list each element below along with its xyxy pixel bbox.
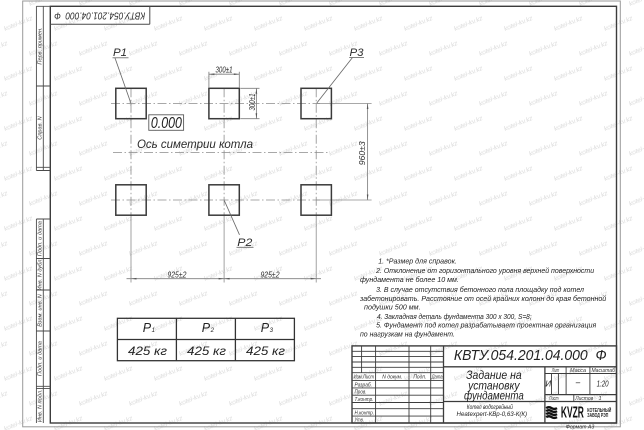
svg-text:И: И bbox=[545, 380, 551, 389]
svg-text:фундамента не более 10 мм.: фундамента не более 10 мм. bbox=[360, 275, 459, 284]
svg-text:300±1: 300±1 bbox=[248, 94, 257, 111]
svg-text:Изм.Лист: Изм.Лист bbox=[354, 375, 375, 381]
svg-text:Листов: Листов bbox=[574, 396, 593, 402]
svg-text:Масштаб: Масштаб bbox=[591, 368, 615, 374]
svg-text:Р: Р bbox=[143, 321, 152, 335]
svg-text:–: – bbox=[575, 378, 581, 387]
svg-text:3. В случае отсутствия бетонно: 3. В случае отсутствия бетонного пола пл… bbox=[376, 285, 585, 294]
svg-text:960±3: 960±3 bbox=[358, 141, 367, 166]
svg-text:Ось симетрии котла: Ось симетрии котла bbox=[137, 139, 253, 151]
svg-text:Т.контр.: Т.контр. bbox=[355, 397, 374, 403]
svg-text:1:20: 1:20 bbox=[597, 380, 609, 389]
svg-text:Утв.: Утв. bbox=[354, 418, 364, 424]
svg-text:Heatexpert-КВр-0,63-К(К): Heatexpert-КВр-0,63-К(К) bbox=[457, 411, 528, 418]
svg-text:Р1: Р1 bbox=[113, 47, 127, 59]
svg-text:Р: Р bbox=[261, 321, 270, 335]
svg-text:Перв. примен.: Перв. примен. bbox=[38, 27, 44, 64]
svg-text:подушки 500 мм.: подушки 500 мм. bbox=[364, 303, 421, 312]
svg-text:ЗАВОД РЭП: ЗАВОД РЭП bbox=[587, 413, 608, 419]
svg-text:Пров.: Пров. bbox=[355, 390, 367, 396]
svg-text:2. Отклонение от горизонтально: 2. Отклонение от горизонтального уровня … bbox=[375, 266, 595, 275]
svg-text:4. Закладная деталь фундамента: 4. Закладная деталь фундамента 300 х 300… bbox=[377, 312, 532, 321]
svg-text:Подп. и дата: Подп. и дата bbox=[38, 341, 44, 376]
svg-text:Р: Р bbox=[202, 321, 211, 335]
svg-text:фундамента: фундамента bbox=[464, 389, 524, 403]
svg-text:Справ. N: Справ. N bbox=[38, 115, 44, 139]
svg-text:Инв. N подл.: Инв. N подл. bbox=[38, 389, 44, 422]
svg-text:КВТУ.054.201.04.000 Ф: КВТУ.054.201.04.000 Ф bbox=[454, 347, 607, 364]
svg-text:Инв. N дубл.: Инв. N дубл. bbox=[38, 258, 44, 290]
svg-text:300±1: 300±1 bbox=[216, 65, 233, 74]
svg-text:забетонировать. Расстояние от: забетонировать. Расстояние от осей крайн… bbox=[359, 294, 607, 303]
svg-text:Лит: Лит bbox=[551, 368, 559, 374]
svg-text:425 кг: 425 кг bbox=[246, 344, 285, 358]
svg-text:по нагрузкам на фундамент.: по нагрузкам на фундамент. bbox=[360, 329, 455, 338]
svg-text:425 кг: 425 кг bbox=[128, 344, 167, 358]
svg-text:Масса: Масса bbox=[570, 368, 586, 374]
svg-text:5. Фундамент под котел разраба: 5. Фундамент под котел разрабатывает про… bbox=[376, 321, 596, 330]
svg-text:1. *Размер для справок.: 1. *Размер для справок. bbox=[378, 256, 457, 265]
svg-text:Дата: Дата bbox=[431, 375, 443, 381]
svg-text:КВТУ.054.201.04.000 Ф: КВТУ.054.201.04.000 Ф bbox=[54, 10, 145, 21]
svg-text:425 кг: 425 кг bbox=[187, 344, 226, 358]
svg-text:925±2: 925±2 bbox=[261, 270, 280, 279]
svg-text:Подп.: Подп. bbox=[413, 375, 426, 381]
svg-text:0.000: 0.000 bbox=[151, 115, 182, 132]
svg-text:Взам. инв. N: Взам. инв. N bbox=[38, 293, 44, 327]
svg-text:Лист: Лист bbox=[548, 396, 558, 402]
svg-text:925±2: 925±2 bbox=[167, 270, 186, 279]
svg-text:Подп. и дата: Подп. и дата bbox=[38, 221, 44, 256]
svg-text:1: 1 bbox=[152, 328, 155, 334]
svg-text:N докум.: N докум. bbox=[382, 375, 402, 381]
svg-text:1: 1 bbox=[598, 396, 601, 402]
svg-text:Н.контр.: Н.контр. bbox=[355, 411, 375, 417]
svg-text:KVZR: KVZR bbox=[561, 405, 584, 422]
svg-text:2: 2 bbox=[210, 328, 215, 334]
svg-text:Формат А3: Формат А3 bbox=[566, 424, 595, 430]
svg-text:Разраб.: Разраб. bbox=[355, 382, 373, 388]
